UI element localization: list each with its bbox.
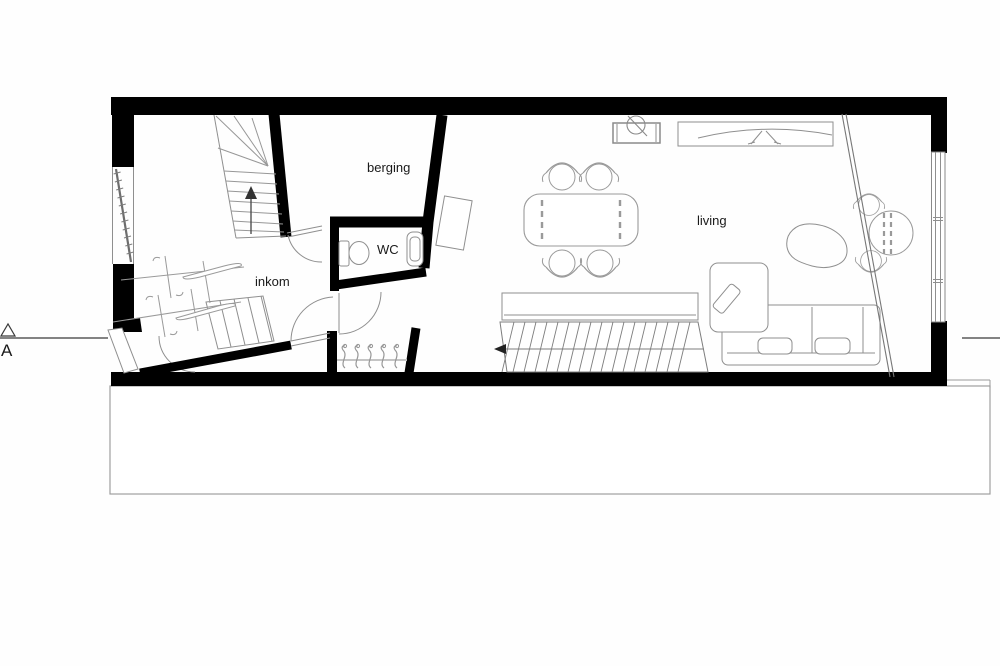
washbasin bbox=[407, 232, 423, 266]
dining-chair bbox=[542, 250, 581, 277]
dining-chair bbox=[542, 163, 581, 190]
sofa-pillow bbox=[815, 338, 850, 354]
room-label-inkom: inkom bbox=[255, 274, 290, 289]
room-label-berging: berging bbox=[367, 160, 410, 175]
room-label-living: living bbox=[697, 213, 727, 228]
section-marker-left: A bbox=[0, 324, 108, 360]
wc-door bbox=[339, 292, 381, 334]
sofa-pillow bbox=[758, 338, 792, 354]
room-label-wc: WC bbox=[377, 242, 399, 257]
dining-chair bbox=[579, 163, 618, 190]
stair-down-arrow-icon bbox=[494, 344, 506, 354]
corner-sofa bbox=[710, 263, 880, 365]
dining-chair bbox=[580, 250, 619, 277]
window-left bbox=[113, 167, 134, 264]
section-marker-label: A bbox=[1, 341, 13, 360]
inkom-corridor-door bbox=[291, 297, 333, 346]
dining-set bbox=[524, 163, 638, 277]
toilet bbox=[339, 241, 369, 266]
basement-staircase bbox=[494, 322, 708, 372]
area-rug bbox=[787, 224, 847, 268]
terrace-outline bbox=[110, 380, 990, 494]
bicycle-1 bbox=[121, 256, 244, 303]
storage-door bbox=[287, 226, 322, 262]
entry-steps bbox=[206, 296, 274, 349]
kitchen-unit bbox=[613, 116, 660, 143]
bench bbox=[502, 293, 698, 320]
desk bbox=[436, 196, 472, 250]
coat-hooks bbox=[337, 344, 407, 368]
window-right bbox=[932, 152, 946, 322]
floor-plan-svg: A bbox=[0, 0, 1000, 666]
tv-cabinet bbox=[678, 122, 833, 146]
floor-plan-page: A bbox=[0, 0, 1000, 666]
